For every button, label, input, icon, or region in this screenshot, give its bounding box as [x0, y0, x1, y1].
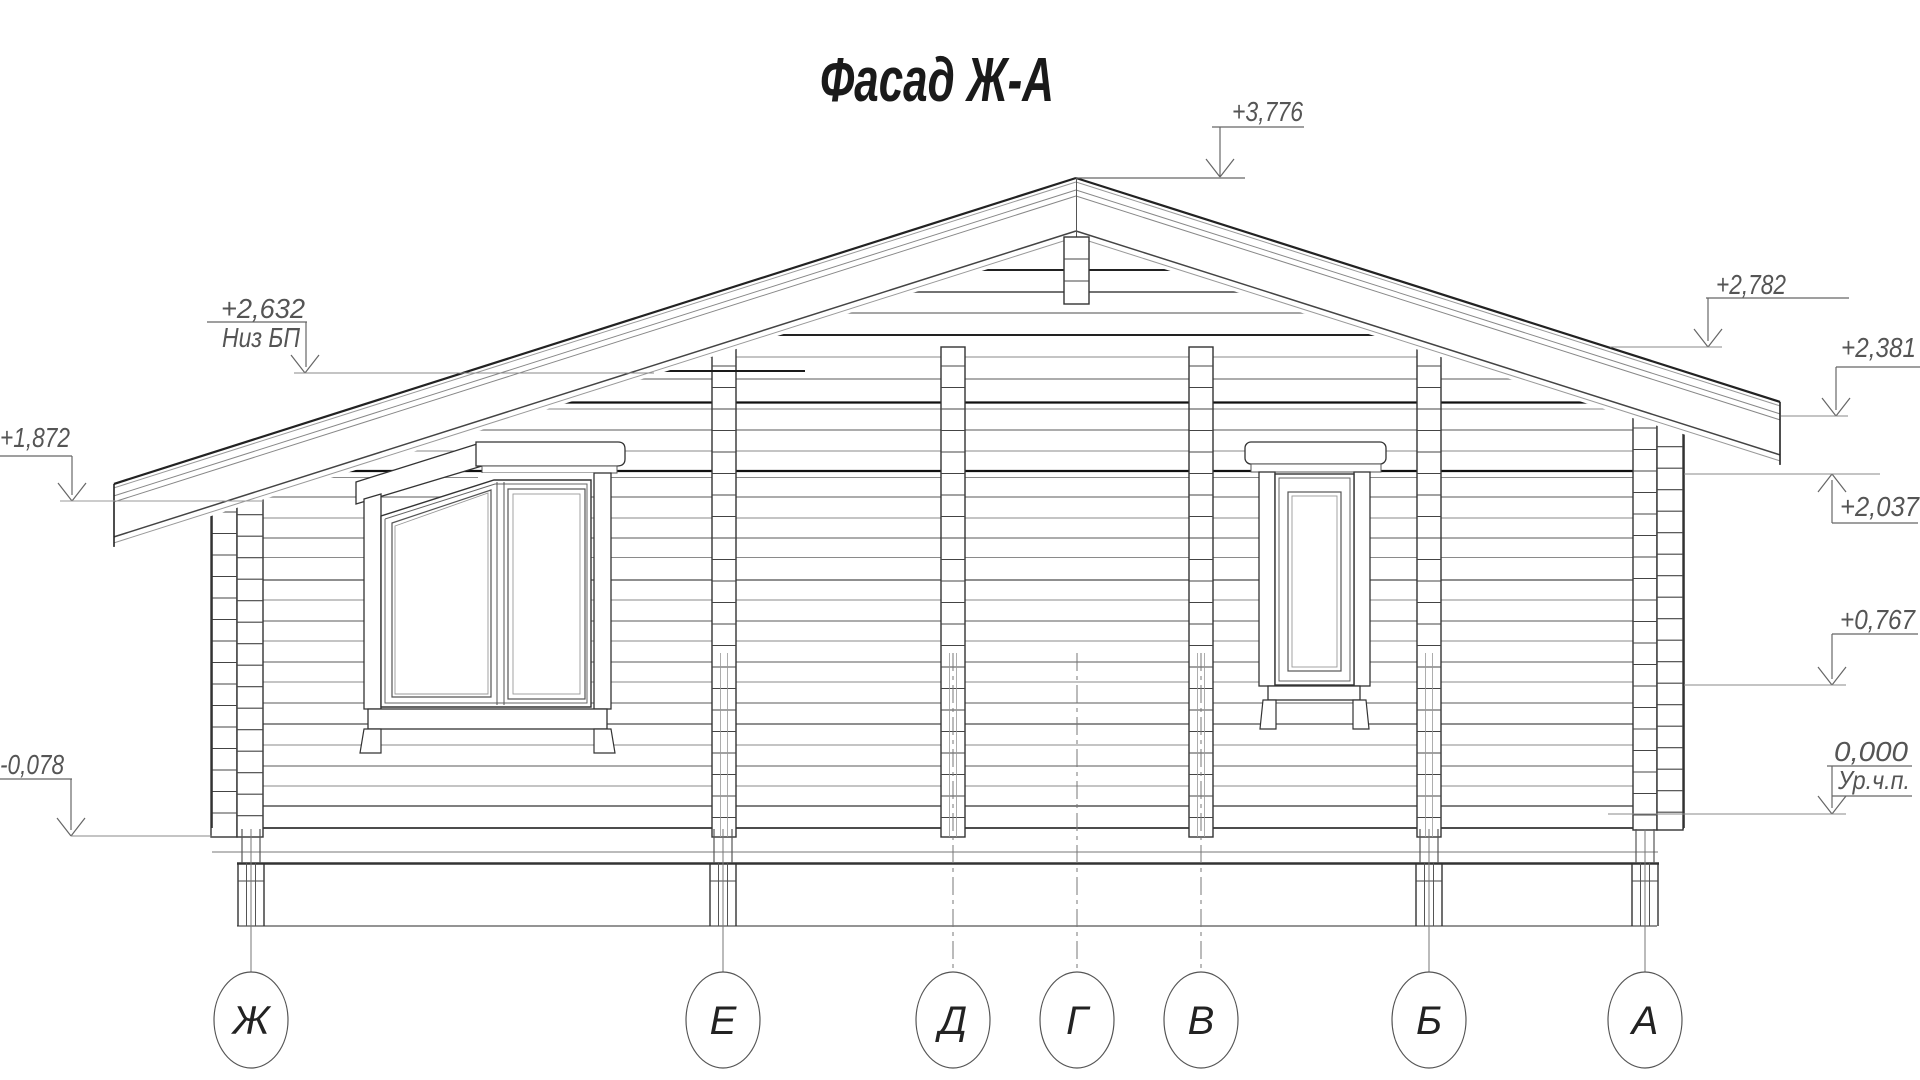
svg-text:Д: Д [935, 999, 967, 1043]
svg-text:-0,078: -0,078 [0, 749, 64, 780]
svg-text:Ж: Ж [231, 999, 272, 1043]
svg-text:Г: Г [1066, 999, 1091, 1043]
svg-text:Ур.ч.п.: Ур.ч.п. [1837, 765, 1910, 795]
svg-text:+2,782: +2,782 [1716, 269, 1786, 300]
svg-text:+2,381: +2,381 [1841, 332, 1916, 363]
svg-text:0,000: 0,000 [1834, 736, 1908, 767]
svg-text:В: В [1188, 999, 1215, 1043]
svg-text:+3,776: +3,776 [1232, 96, 1303, 127]
svg-text:+1,872: +1,872 [0, 422, 70, 453]
svg-text:Е: Е [710, 999, 738, 1043]
svg-text:+2,037: +2,037 [1840, 491, 1920, 522]
svg-text:Б: Б [1416, 999, 1442, 1043]
svg-text:А: А [1630, 999, 1659, 1043]
svg-text:Фасад Ж-А: Фасад Ж-А [820, 46, 1054, 115]
svg-text:Низ БП: Низ БП [222, 322, 301, 353]
svg-text:+2,632: +2,632 [221, 293, 305, 324]
svg-text:+0,767: +0,767 [1840, 604, 1916, 635]
